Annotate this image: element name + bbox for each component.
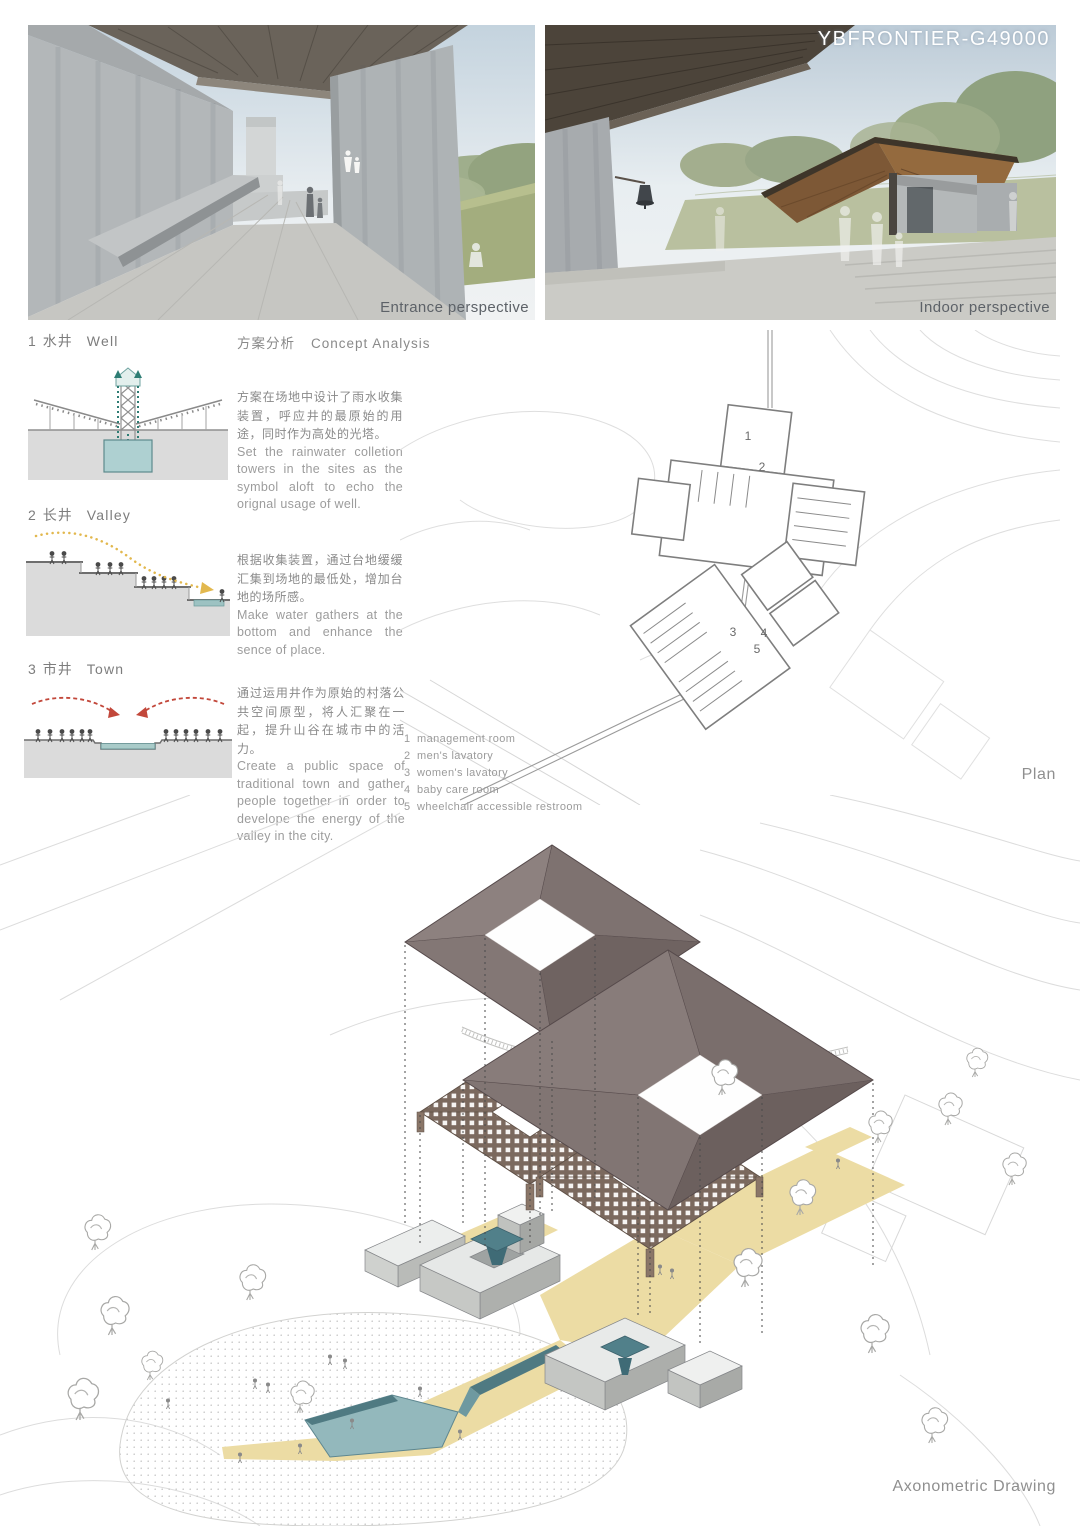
well-text: 方案在场地中设计了雨水收集装置，呼应井的最原始的用途，同时作为高处的光塔。 Se… bbox=[237, 388, 403, 514]
section-header-valley: 2长井Valley bbox=[28, 505, 131, 525]
section-title-en: Valley bbox=[87, 507, 131, 523]
presentation-board: Entrance perspective bbox=[0, 0, 1080, 1526]
legend-item: 3women's lavatory bbox=[404, 765, 582, 782]
section-title-zh: 长井 bbox=[43, 507, 73, 523]
indoor-render-label: Indoor perspective bbox=[919, 299, 1050, 316]
plan-label: Plan bbox=[1022, 766, 1056, 784]
water-tank bbox=[104, 440, 152, 472]
room-number-1: 1 bbox=[745, 429, 752, 443]
entrance-render-label: Entrance perspective bbox=[380, 299, 529, 316]
board-title: YBFRONTIER-G49000 bbox=[818, 28, 1050, 51]
valley-text: 根据收集装置，通过台地缓缓汇集到场地的最低处，增加台地的场所感。 Make wa… bbox=[237, 551, 403, 659]
upper-building bbox=[630, 395, 874, 579]
well-diagram bbox=[28, 366, 228, 480]
room-number-2: 2 bbox=[759, 460, 766, 474]
entrance-render-image: Entrance perspective bbox=[28, 25, 535, 320]
axonometric-drawing bbox=[0, 795, 1080, 1526]
town-diagram bbox=[24, 690, 232, 778]
valley-text-zh: 根据收集装置，通过台地缓缓汇集到场地的最低处，增加台地的场所感。 bbox=[237, 551, 403, 607]
section-number: 2 bbox=[28, 507, 37, 523]
town-text-zh: 通过运用井作为原始的村落公共空间原型，将人汇聚在一起，提升山谷在城市中的活力。 bbox=[237, 684, 405, 758]
legend-item: 1management room bbox=[404, 731, 582, 748]
room-number-5: 5 bbox=[754, 642, 761, 656]
valley-water bbox=[194, 600, 224, 606]
valley-text-en: Make water gathers at the bottom and enh… bbox=[237, 607, 403, 660]
section-title-zh: 水井 bbox=[43, 333, 73, 349]
room-number-4: 4 bbox=[761, 626, 768, 640]
valley-diagram bbox=[26, 530, 230, 642]
section-title-en: Well bbox=[87, 333, 119, 349]
section-number: 3 bbox=[28, 661, 37, 677]
neighbor-footprints bbox=[830, 630, 1001, 779]
room-number-3: 3 bbox=[730, 625, 737, 639]
section-header-town: 3市井Town bbox=[28, 659, 124, 679]
indoor-render-scene bbox=[545, 25, 1056, 320]
concept-header-zh: 方案分析 bbox=[237, 336, 295, 351]
section-number: 1 bbox=[28, 333, 37, 349]
well-text-en: Set the rainwater colletion towers in th… bbox=[237, 444, 403, 514]
gathering-arrows bbox=[32, 698, 224, 718]
well-text-zh: 方案在场地中设计了雨水收集装置，呼应井的最原始的用途，同时作为高处的光塔。 bbox=[237, 388, 403, 444]
town-well-water bbox=[101, 744, 155, 750]
axonometric-label: Axonometric Drawing bbox=[893, 1478, 1056, 1496]
section-title-zh: 市井 bbox=[43, 661, 73, 677]
legend-item: 2men's lavatory bbox=[404, 748, 582, 765]
section-title-en: Town bbox=[87, 661, 124, 677]
entrance-render-scene bbox=[28, 25, 535, 320]
indoor-render-image: YBFRONTIER-G49000 Indoor perspective bbox=[545, 25, 1056, 320]
section-header-well: 1水井Well bbox=[28, 331, 119, 351]
